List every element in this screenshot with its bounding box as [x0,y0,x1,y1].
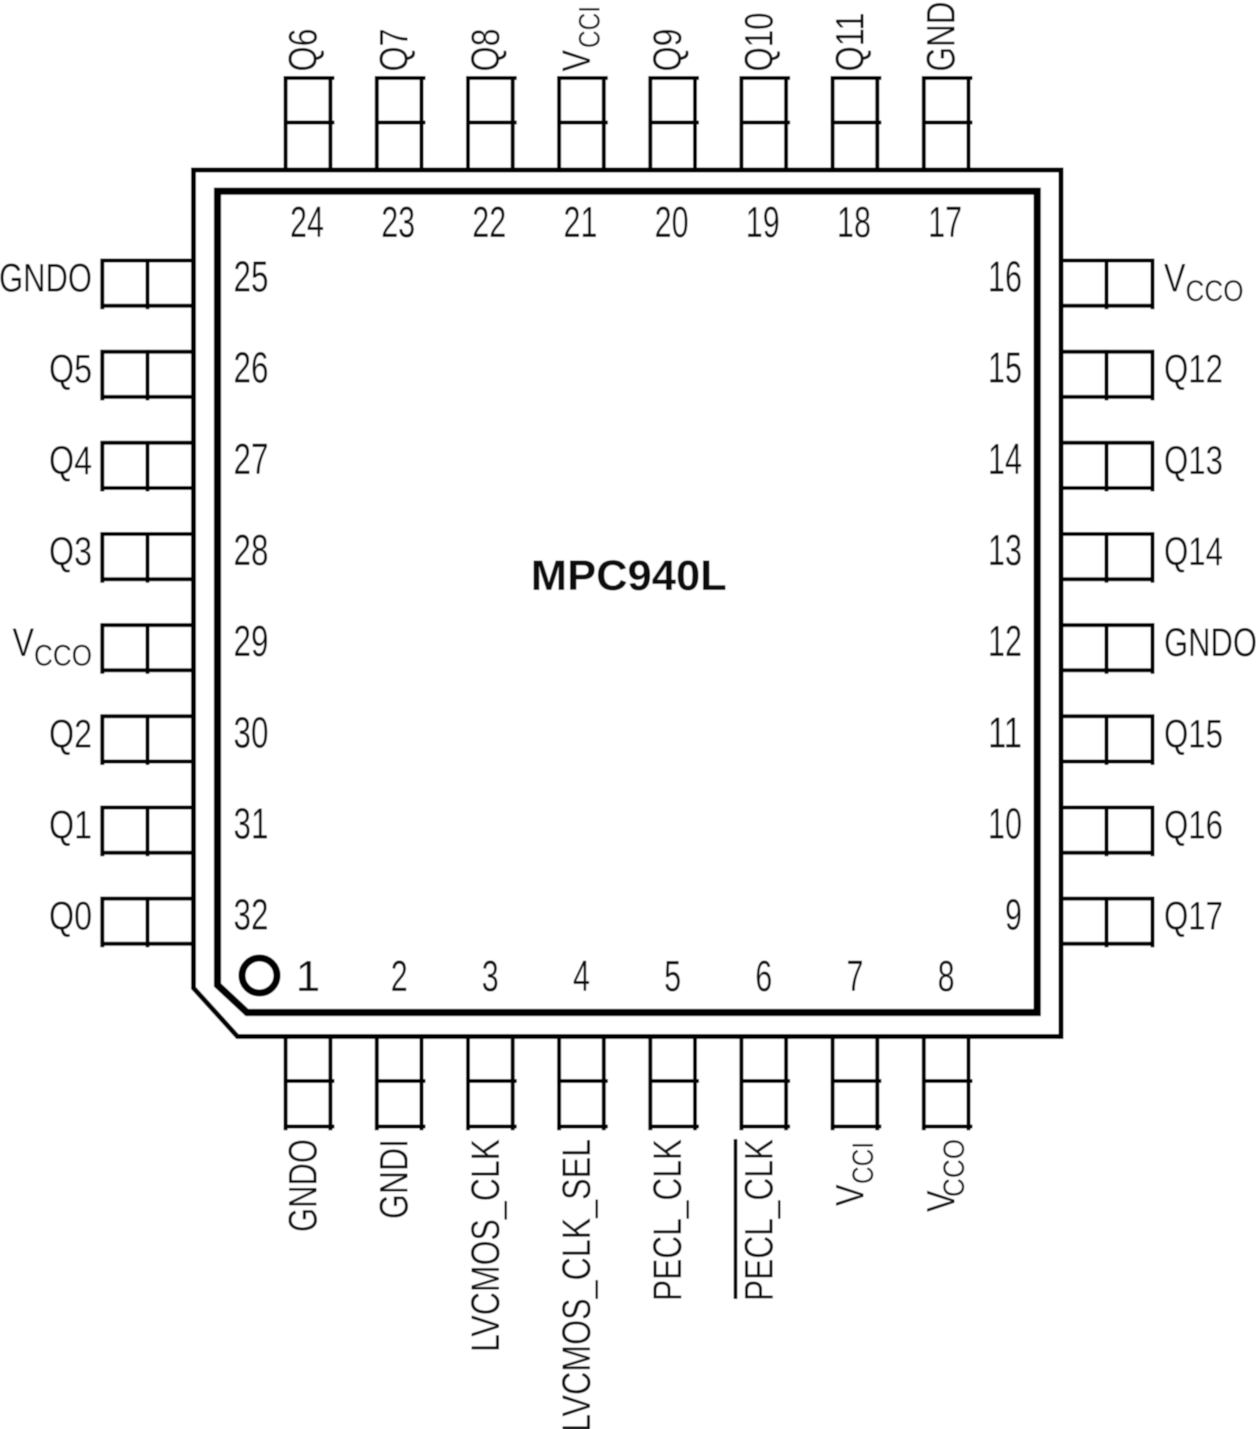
svg-text:V: V [829,1184,873,1206]
svg-text:Q11: Q11 [829,13,873,72]
svg-text:GNDO: GNDO [1164,621,1256,665]
svg-text:V: V [555,50,599,72]
svg-text:31: 31 [234,800,269,849]
svg-text:Q5: Q5 [49,348,92,392]
svg-text:Q9: Q9 [646,29,690,72]
svg-text:Q0: Q0 [49,895,92,939]
svg-text:Q10: Q10 [737,13,781,72]
svg-text:CCI: CCI [847,1142,880,1184]
svg-text:CCI: CCI [573,6,606,48]
svg-text:17: 17 [928,198,962,247]
svg-text:24: 24 [290,198,324,247]
svg-text:Q17: Q17 [1164,895,1223,939]
svg-text:25: 25 [234,253,269,302]
svg-text:20: 20 [655,198,689,247]
svg-text:4: 4 [573,952,590,1001]
svg-text:PECL_CLK: PECL_CLK [737,1139,781,1301]
svg-text:18: 18 [837,198,871,247]
svg-text:GNDO: GNDO [0,257,92,301]
svg-text:26: 26 [234,344,269,393]
svg-text:Q3: Q3 [49,530,92,574]
svg-text:Q13: Q13 [1164,439,1223,483]
svg-text:1: 1 [296,952,320,1001]
svg-text:16: 16 [988,253,1022,302]
svg-text:Q4: Q4 [49,439,92,483]
svg-text:Q14: Q14 [1164,530,1223,574]
svg-text:11: 11 [988,708,1022,757]
svg-text:22: 22 [472,198,506,247]
svg-text:Q1: Q1 [49,804,92,848]
svg-text:MPC940L: MPC940L [531,552,727,600]
svg-text:2: 2 [391,952,408,1001]
svg-text:Q2: Q2 [49,712,92,756]
svg-text:3: 3 [482,952,499,1001]
svg-text:28: 28 [234,526,269,575]
svg-text:GNDI: GNDI [373,1139,417,1219]
svg-text:LVCMOS_CLK: LVCMOS_CLK [464,1139,508,1352]
svg-text:V: V [13,621,35,665]
svg-text:Q6: Q6 [282,29,326,72]
svg-text:9: 9 [1005,891,1022,940]
svg-text:8: 8 [938,952,955,1001]
svg-text:7: 7 [847,952,864,1001]
svg-text:13: 13 [988,526,1022,575]
svg-text:21: 21 [564,198,598,247]
svg-text:GNDO: GNDO [282,1139,326,1232]
svg-text:27: 27 [234,435,269,484]
svg-text:Q12: Q12 [1164,348,1223,392]
svg-text:Q16: Q16 [1164,804,1223,848]
svg-text:Q8: Q8 [464,29,508,72]
svg-text:19: 19 [746,198,780,247]
svg-text:12: 12 [988,617,1022,666]
svg-text:Q7: Q7 [373,29,417,72]
svg-text:10: 10 [988,800,1022,849]
svg-text:14: 14 [988,435,1022,484]
svg-text:29: 29 [234,617,269,666]
svg-text:6: 6 [755,952,772,1001]
svg-text:23: 23 [381,198,415,247]
svg-text:CCO: CCO [938,1139,971,1197]
svg-text:Q15: Q15 [1164,712,1223,756]
svg-text:LVCMOS_CLK_SEL: LVCMOS_CLK_SEL [555,1139,599,1429]
svg-text:32: 32 [234,891,269,940]
svg-text:PECL_CLK: PECL_CLK [646,1139,690,1301]
svg-text:CCO: CCO [34,639,92,672]
svg-text:5: 5 [664,952,681,1001]
svg-text:15: 15 [988,344,1022,393]
svg-text:CCO: CCO [1186,275,1244,308]
svg-text:GND: GND [920,2,964,72]
svg-text:30: 30 [234,708,269,757]
svg-text:V: V [1164,257,1186,301]
